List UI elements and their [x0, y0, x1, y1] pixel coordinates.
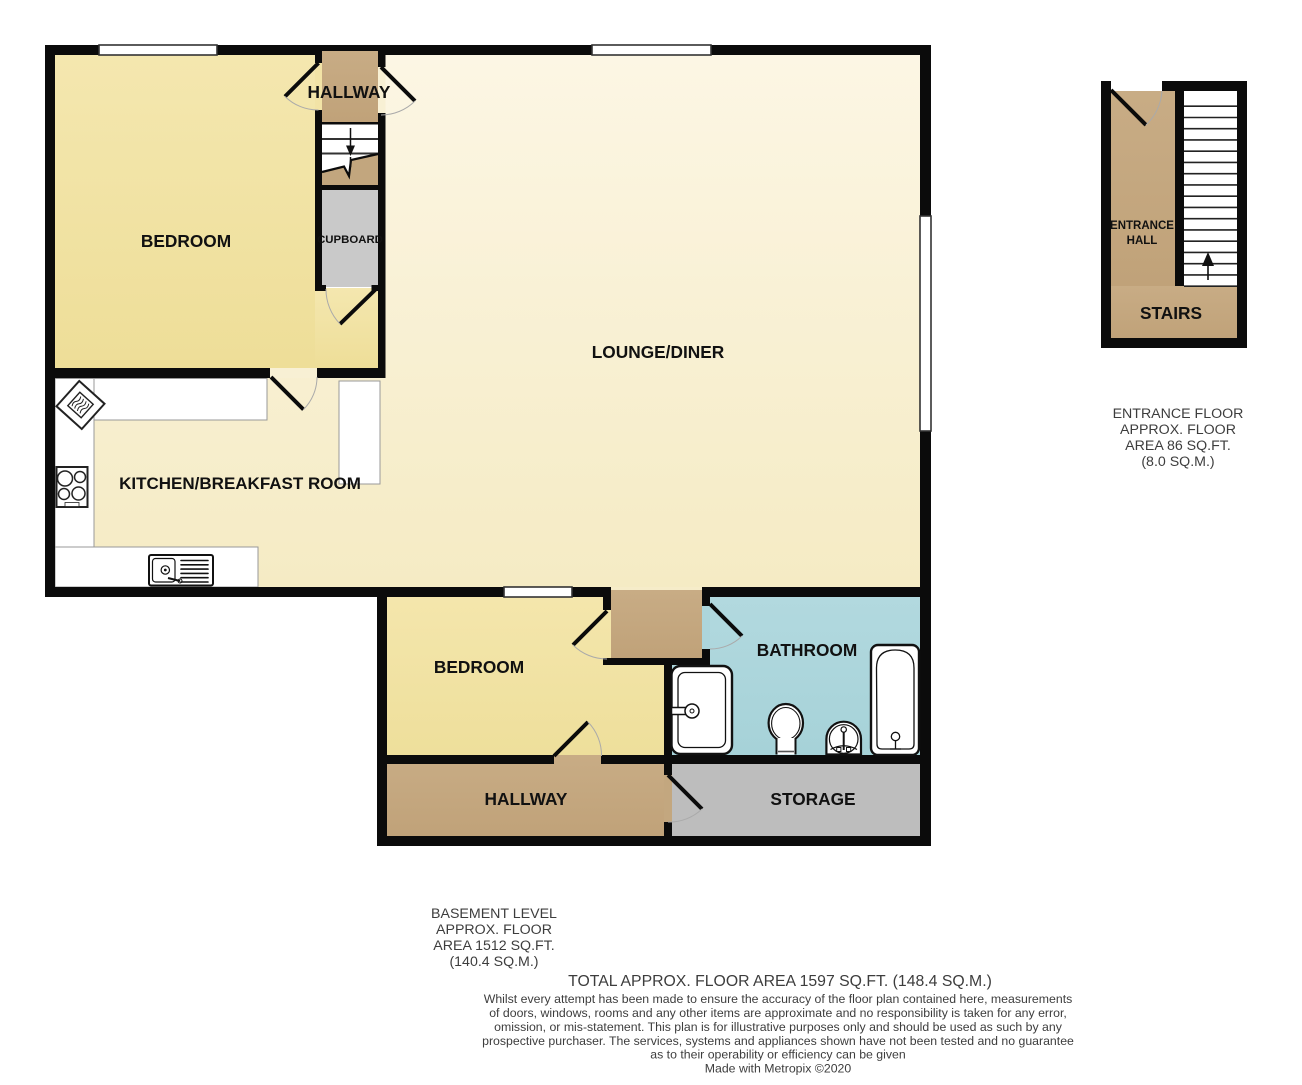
svg-text:omission, or mis-statement. Th: omission, or mis-statement. This plan is…	[494, 1020, 1063, 1034]
svg-text:BASEMENT LEVEL: BASEMENT LEVEL	[431, 906, 557, 922]
svg-text:ENTRANCE: ENTRANCE	[1110, 220, 1174, 232]
svg-text:ENTRANCE FLOOR: ENTRANCE FLOOR	[1113, 406, 1244, 422]
svg-text:Made with Metropix ©2020: Made with Metropix ©2020	[705, 1062, 852, 1076]
svg-text:HALLWAY: HALLWAY	[485, 789, 568, 809]
svg-text:AREA 1512 SQ.FT.: AREA 1512 SQ.FT.	[433, 938, 554, 954]
svg-text:APPROX. FLOOR: APPROX. FLOOR	[1120, 422, 1236, 438]
svg-text:APPROX. FLOOR: APPROX. FLOOR	[436, 922, 552, 938]
svg-text:prospective purchaser. The ser: prospective purchaser. The services, sys…	[482, 1034, 1074, 1048]
svg-text:HALL: HALL	[1127, 235, 1158, 247]
svg-text:CUPBOARD: CUPBOARD	[317, 234, 383, 246]
svg-text:HALLWAY: HALLWAY	[308, 82, 391, 102]
svg-text:LOUNGE/DINER: LOUNGE/DINER	[592, 342, 725, 362]
svg-text:TOTAL APPROX. FLOOR AREA 1597: TOTAL APPROX. FLOOR AREA 1597 SQ.FT. (14…	[568, 973, 992, 990]
svg-text:of doors, windows, rooms and a: of doors, windows, rooms and any other i…	[489, 1006, 1067, 1020]
svg-text:STORAGE: STORAGE	[770, 789, 855, 809]
svg-text:(8.0 SQ.M.): (8.0 SQ.M.)	[1141, 454, 1214, 470]
svg-text:BEDROOM: BEDROOM	[141, 231, 231, 251]
svg-text:KITCHEN/BREAKFAST ROOM: KITCHEN/BREAKFAST ROOM	[119, 474, 361, 493]
svg-text:STAIRS: STAIRS	[1140, 303, 1202, 323]
svg-text:AREA 86 SQ.FT.: AREA 86 SQ.FT.	[1125, 438, 1231, 454]
svg-text:BEDROOM: BEDROOM	[434, 657, 524, 677]
svg-text:Whilst every attempt has been: Whilst every attempt has been made to en…	[484, 992, 1073, 1006]
svg-text:as to their operability or eff: as to their operability or efficiency ca…	[650, 1048, 906, 1062]
svg-text:BATHROOM: BATHROOM	[757, 640, 857, 660]
svg-text:(140.4 SQ.M.): (140.4 SQ.M.)	[449, 954, 538, 970]
